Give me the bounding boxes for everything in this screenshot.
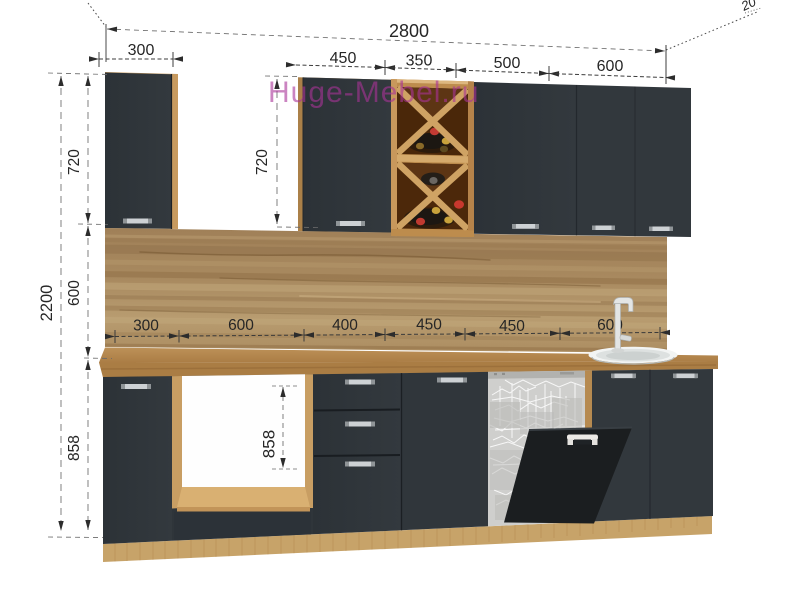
svg-text:2800: 2800: [389, 21, 429, 41]
svg-text:600: 600: [597, 58, 624, 75]
svg-text:600: 600: [228, 317, 254, 334]
svg-text:858: 858: [260, 430, 279, 458]
svg-text:450: 450: [416, 317, 442, 334]
svg-text:450: 450: [499, 318, 525, 335]
svg-text:400: 400: [332, 317, 358, 334]
svg-text:858: 858: [66, 435, 83, 461]
svg-text:500: 500: [494, 55, 521, 72]
svg-text:600: 600: [66, 280, 83, 306]
svg-text:450: 450: [330, 50, 357, 67]
svg-text:300: 300: [133, 318, 159, 335]
svg-text:300: 300: [128, 42, 155, 59]
svg-text:2200: 2200: [38, 285, 56, 322]
svg-text:720: 720: [66, 149, 83, 175]
svg-text:350: 350: [406, 53, 433, 70]
svg-text:Huge-Mebel.ru: Huge-Mebel.ru: [268, 76, 479, 109]
svg-text:720: 720: [254, 149, 271, 175]
